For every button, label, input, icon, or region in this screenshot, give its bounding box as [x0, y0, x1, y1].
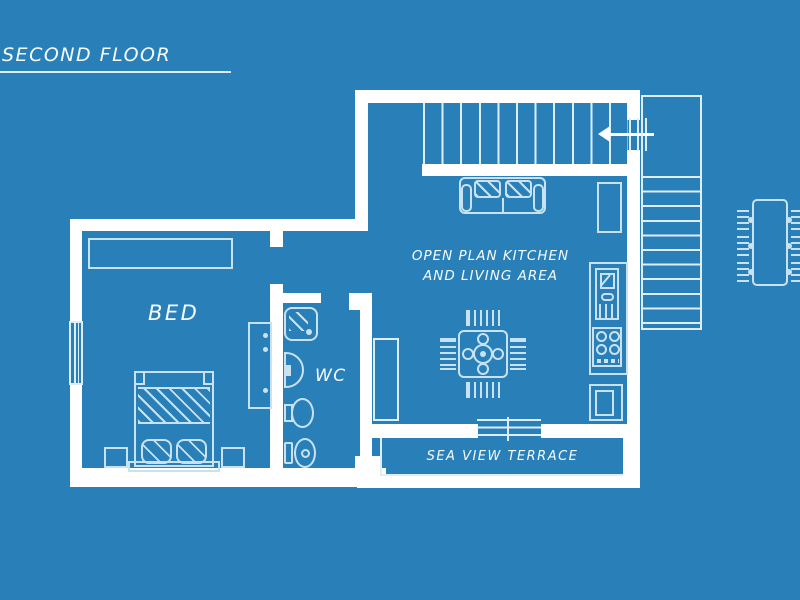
outdoor-dining-table — [737, 196, 800, 290]
outdoor-chair — [791, 236, 800, 258]
bed-post — [134, 371, 145, 385]
toilet — [284, 438, 316, 468]
bedroom-label: BED — [148, 301, 199, 325]
nightstand — [104, 447, 128, 468]
wall-right-upper — [627, 90, 640, 120]
exterior-stairs-treads — [643, 176, 700, 328]
wall-hall-foot — [355, 456, 380, 470]
hob — [592, 327, 622, 367]
bidet-bowl — [291, 398, 314, 428]
outdoor-chair-nub — [748, 243, 754, 249]
outdoor-chair — [791, 210, 800, 232]
dining-chair — [466, 310, 500, 326]
kitchen-sink-unit — [595, 268, 619, 320]
tv-cabinet — [373, 338, 399, 421]
wc-label: WC — [315, 366, 347, 386]
arrow-head — [598, 126, 610, 142]
wall-wc-top — [283, 293, 321, 303]
burner — [609, 344, 620, 355]
floor-plan-blueprint: SECOND FLOOR — [0, 0, 800, 600]
sofa-cushion — [505, 180, 532, 198]
wardrobe — [88, 238, 233, 269]
dining-chair — [440, 338, 456, 370]
window-left — [69, 321, 83, 385]
double-bed — [128, 370, 220, 472]
appliance-door — [595, 390, 614, 416]
burner — [596, 344, 607, 355]
wall-terrace-parapet — [357, 476, 640, 488]
nightstand — [221, 447, 245, 468]
sink-faucet — [600, 274, 611, 287]
terrace-steps-centerline — [507, 417, 509, 441]
plate — [477, 363, 489, 375]
title-underline — [0, 71, 231, 73]
outdoor-chair-nub — [786, 217, 792, 223]
plate — [462, 348, 474, 360]
wall-bedroom-top — [70, 219, 368, 231]
dresser-knob — [263, 333, 268, 338]
exterior-stairs — [641, 95, 702, 330]
shower-drain — [306, 329, 312, 335]
window-pane-line — [74, 323, 76, 383]
outdoor-table-top — [752, 199, 788, 286]
drain-board — [599, 304, 617, 318]
dresser-knob — [263, 388, 268, 393]
window-pane-line — [78, 323, 80, 383]
dining-chair — [510, 338, 526, 370]
plate — [477, 333, 489, 345]
dining-table-set — [440, 310, 526, 398]
outdoor-chair-nub — [748, 217, 754, 223]
page-title: SECOND FLOOR — [2, 44, 171, 66]
outdoor-chair-nub — [786, 243, 792, 249]
wall-under-stairs — [422, 164, 633, 176]
outdoor-chair-nub — [786, 269, 792, 275]
living-label-line1: OPEN PLAN KITCHEN — [398, 246, 583, 266]
wall-living-bottom-left — [372, 424, 478, 438]
sink-basin — [600, 273, 615, 289]
wall-terrace-right — [623, 433, 640, 478]
shower — [284, 307, 318, 341]
sofa-cushion — [474, 180, 501, 198]
sofa-armrest — [533, 184, 544, 212]
toilet-bowl — [294, 438, 316, 468]
wall-kitchen-left — [355, 90, 368, 231]
wall-right-main — [627, 150, 640, 433]
washbasin-faucet — [286, 365, 291, 376]
shower-hatch — [289, 312, 308, 331]
toilet-tank — [284, 442, 293, 464]
bed-blanket — [138, 387, 210, 424]
wall-hall-right — [360, 293, 372, 458]
sofa — [459, 177, 546, 215]
plate — [492, 348, 504, 360]
dresser-knob — [263, 347, 268, 352]
wall-living-bottom-right — [541, 424, 633, 438]
wall-bedroom-bottom — [70, 468, 386, 487]
bed-post — [203, 371, 214, 385]
terrace-steps — [477, 419, 541, 439]
toilet-bowl-inner — [301, 449, 310, 458]
terrace-area: SEA VIEW TERRACE — [380, 438, 623, 476]
wall-wc-stub — [270, 231, 283, 247]
burner — [596, 331, 607, 342]
sink-soap-dish — [601, 293, 614, 301]
outdoor-chair-nub — [748, 269, 754, 275]
burner — [609, 331, 620, 342]
kitchen-tall-cabinet — [597, 182, 622, 233]
sofa-seat-divider — [502, 198, 504, 212]
sofa-armrest — [461, 184, 472, 212]
terrace-label: SEA VIEW TERRACE — [427, 449, 579, 464]
appliance — [589, 384, 623, 421]
hob-knobs — [597, 359, 619, 363]
living-label-line2: AND LIVING AREA — [398, 266, 583, 286]
table-centerpiece-dot — [480, 351, 486, 357]
dining-chair — [466, 382, 500, 398]
dresser — [248, 322, 272, 409]
outdoor-chair — [791, 262, 800, 284]
washbasin — [284, 352, 304, 388]
living-room-label: OPEN PLAN KITCHEN AND LIVING AREA — [398, 246, 583, 286]
wall-top-main — [355, 90, 640, 103]
bed-headboard — [128, 461, 220, 472]
bidet — [284, 398, 314, 428]
